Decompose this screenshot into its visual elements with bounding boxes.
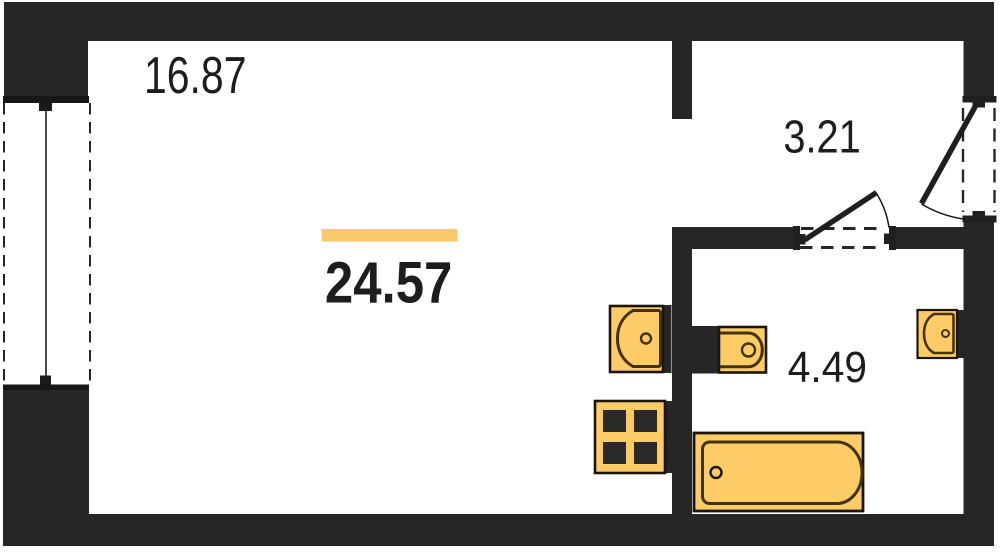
svg-text:3.21: 3.21 [783, 110, 860, 162]
svg-text:24.57: 24.57 [325, 251, 453, 316]
svg-text:16.87: 16.87 [144, 47, 247, 105]
svg-text:4.49: 4.49 [788, 343, 867, 392]
